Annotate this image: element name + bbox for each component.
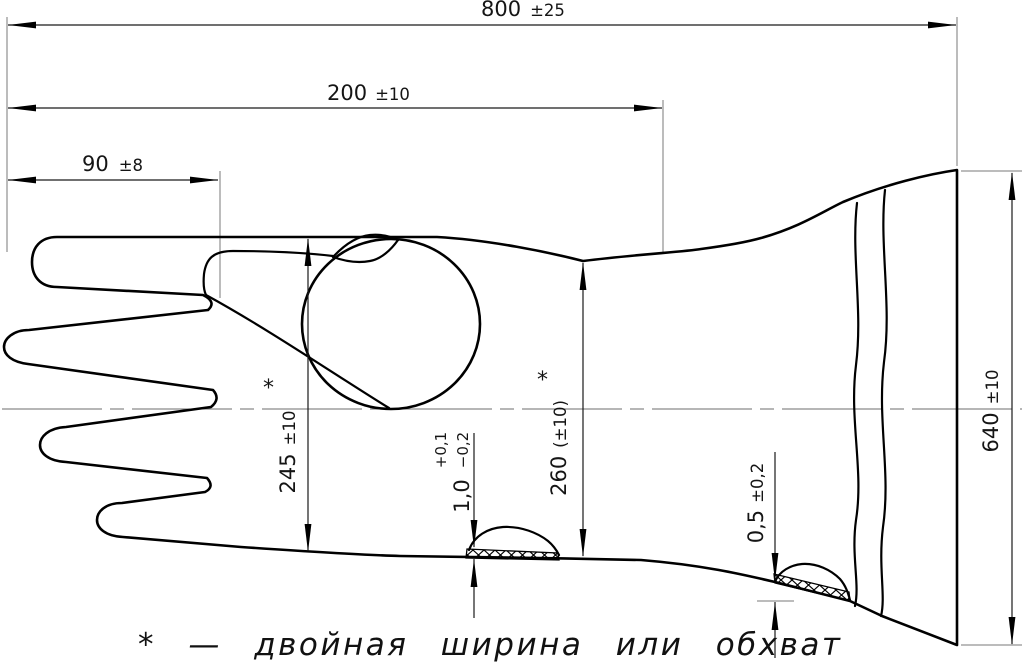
glove-outline bbox=[4, 170, 957, 645]
arrow-260-bottom bbox=[580, 529, 587, 557]
label-wrist-width-value: 260 bbox=[547, 456, 571, 496]
label-palm-bead-tol-plus: +0,1 bbox=[432, 432, 450, 468]
label-wrist-width: 260(±10) bbox=[547, 400, 571, 496]
label-finger-length-tol: ±8 bbox=[119, 156, 143, 175]
label-palm-bead-value: 1,0 bbox=[450, 479, 474, 512]
label-cuff-bead-tol: ±0,2 bbox=[748, 463, 767, 503]
glove-outline-group bbox=[4, 170, 957, 645]
palm-bead-hatch-strip bbox=[466, 549, 559, 560]
palm-width-ref-asterisk: * bbox=[263, 376, 274, 401]
label-finger-length: 90±8 bbox=[82, 152, 143, 176]
label-cuff-width: 640±10 bbox=[979, 370, 1003, 453]
technical-drawing-page: 800±25 200±10 90±8 245±10 * 260(±10) * 6… bbox=[0, 0, 1024, 666]
wrist-width-ref-asterisk: * bbox=[537, 368, 548, 393]
label-palm-width-tol: ±10 bbox=[280, 411, 299, 446]
arrow-palm-bead-up bbox=[471, 559, 478, 587]
arrow-200-right bbox=[634, 105, 662, 112]
dimension-lines bbox=[8, 25, 1012, 658]
glove-technical-drawing: 800±25 200±10 90±8 245±10 * 260(±10) * 6… bbox=[0, 0, 1024, 666]
cuff-bead bbox=[774, 564, 850, 601]
label-palm-width: 245±10 bbox=[276, 411, 300, 494]
label-gauntlet-length-value: 200 bbox=[327, 81, 367, 105]
arrow-200-left bbox=[8, 105, 36, 112]
label-cuff-width-value: 640 bbox=[979, 412, 1003, 452]
label-wrist-width-tol: (±10) bbox=[551, 400, 570, 448]
arrow-640-top bbox=[1009, 172, 1016, 200]
arrow-245-top bbox=[305, 238, 312, 266]
label-cuff-bead-value: 0,5 bbox=[744, 510, 768, 543]
label-cuff-width-tol: ±10 bbox=[983, 370, 1002, 405]
arrow-800-right bbox=[928, 22, 956, 29]
arrow-cuff-bead-up bbox=[772, 602, 779, 630]
thumb-upper-seam bbox=[204, 251, 333, 295]
arrow-640-bottom bbox=[1009, 617, 1016, 645]
label-overall-length-tol: ±25 bbox=[530, 1, 565, 20]
footnote-double-width-note: * — двойная ширина или обхват bbox=[138, 627, 842, 663]
label-finger-length-value: 90 bbox=[82, 152, 109, 176]
label-gauntlet-length: 200±10 bbox=[327, 81, 410, 105]
label-cuff-bead: 0,5±0,2 bbox=[744, 463, 768, 543]
label-palm-bead-tol-minus: −0,2 bbox=[454, 432, 472, 468]
label-overall-length-value: 800 bbox=[481, 0, 521, 21]
label-palm-width-value: 245 bbox=[276, 453, 300, 493]
cuff-roll-wavy-line-2 bbox=[881, 190, 887, 616]
arrow-90-left bbox=[8, 177, 36, 184]
arrow-260-top bbox=[580, 262, 587, 290]
arrow-800-left bbox=[8, 22, 36, 29]
cuff-roll-wavy-line-1 bbox=[854, 203, 858, 606]
thumb-circle bbox=[302, 239, 480, 409]
thumb-palm-seam bbox=[206, 295, 389, 408]
arrow-245-bottom bbox=[305, 524, 312, 552]
label-overall-length: 800±25 bbox=[481, 0, 565, 21]
palm-bead bbox=[466, 527, 559, 560]
label-gauntlet-length-tol: ±10 bbox=[375, 85, 410, 104]
arrow-90-right bbox=[190, 177, 218, 184]
